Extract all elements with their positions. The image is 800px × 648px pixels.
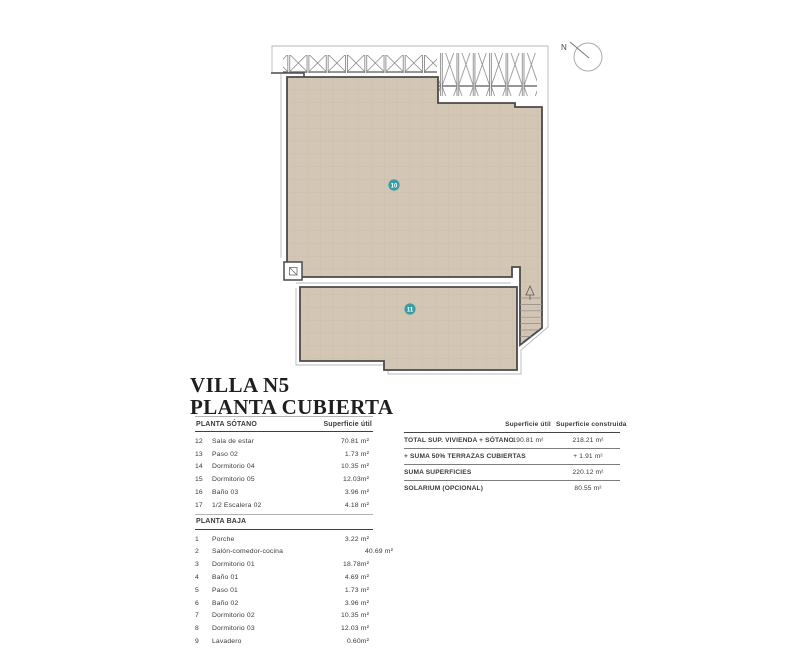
table-row: 12 Sala de estar 70.81 m²: [195, 435, 373, 448]
table-row: 3 Dormitorio 01 18.78m²: [195, 558, 373, 571]
room-area: 4.18 m²: [345, 502, 373, 509]
room-area: 0.60m²: [347, 638, 373, 645]
room-number: 1: [195, 536, 212, 543]
page-title: VILLA N5 PLANTA CUBIERTA: [190, 374, 393, 418]
summary-row: + SUMA 50% TERRAZAS CUBIERTAS + 1.91 m²: [404, 449, 620, 465]
lower-roof-area: [300, 287, 517, 370]
room-area: 3.96 m²: [345, 600, 373, 607]
roof-plan-drawing: 10 11 N: [0, 0, 800, 640]
title-line-2: PLANTA CUBIERTA: [190, 396, 393, 418]
sotano-header: PLANTA SÓTANO Superficie útil: [195, 416, 373, 432]
chimney-symbol: [284, 262, 302, 280]
summary-label: SOLARIUM (OPCIONAL): [404, 485, 500, 492]
summary-col1-header: Superficie útil: [500, 421, 556, 428]
baja-rows: 1 Porche 3.22 m² 2 Salón-comedor-cocina …: [195, 530, 373, 648]
room-area: 12.03 m²: [341, 625, 373, 632]
room-number: 16: [195, 489, 212, 496]
pergola-beams-right: [439, 53, 537, 96]
table-row: 17 1/2 Escalera 02 4.18 m²: [195, 499, 373, 512]
table-row: 7 Dormitorio 02 10.35 m²: [195, 610, 373, 623]
table-row: 9 Lavadero 0.60m²: [195, 635, 373, 648]
room-name: Baño 03: [212, 489, 345, 496]
room-number: 6: [195, 600, 212, 607]
room-area-tables: PLANTA SÓTANO Superficie útil 12 Sala de…: [195, 416, 373, 648]
room-name: Salón-comedor-cocina: [212, 548, 365, 555]
summary-label: SUMA SUPERFICIES: [404, 469, 500, 476]
room-name: Dormitorio 04: [212, 463, 341, 470]
summary-row: TOTAL SUP. VIVIENDA + SÓTANO 190.81 m² 2…: [404, 433, 620, 449]
summary-util: 190.81 m²: [500, 437, 556, 444]
table-row: 8 Dormitorio 03 12.03 m²: [195, 622, 373, 635]
sotano-rows: 12 Sala de estar 70.81 m² 13 Paso 02 1.7…: [195, 432, 373, 512]
room-number: 5: [195, 587, 212, 594]
summary-label: TOTAL SUP. VIVIENDA + SÓTANO: [404, 437, 500, 444]
surface-summary-table: Superficie útil Superficie construida TO…: [404, 416, 620, 496]
room-number: 9: [195, 638, 212, 645]
room-area: 12.03m²: [343, 476, 373, 483]
room-name: 1/2 Escalera 02: [212, 502, 345, 509]
summary-constr: 220.12 m²: [556, 469, 620, 476]
room-name: Lavadero: [212, 638, 347, 645]
pergola-beams-left: [283, 55, 437, 73]
room-name: Dormitorio 01: [212, 561, 343, 568]
table-row: 6 Baño 02 3.96 m²: [195, 597, 373, 610]
room-number: 2: [195, 548, 212, 555]
table-row: 5 Paso 01 1.73 m²: [195, 584, 373, 597]
room-name: Paso 01: [212, 587, 345, 594]
room-marker-10: 10: [388, 179, 399, 190]
room-area: 10.35 m²: [341, 463, 373, 470]
room-area: 10.35 m²: [341, 612, 373, 619]
sotano-col-header: Superficie útil: [323, 421, 372, 428]
room-name: Dormitorio 05: [212, 476, 343, 483]
room-marker-11-label: 11: [407, 307, 414, 313]
summary-row: SUMA SUPERFICIES 220.12 m²: [404, 465, 620, 481]
room-number: 14: [195, 463, 212, 470]
room-number: 4: [195, 574, 212, 581]
title-line-1: VILLA N5: [190, 374, 393, 396]
room-number: 8: [195, 625, 212, 632]
room-number: 7: [195, 612, 212, 619]
summary-constr: 218.21 m²: [556, 437, 620, 444]
room-name: Baño 01: [212, 574, 345, 581]
table-row: 16 Baño 03 3.96 m²: [195, 486, 373, 499]
table-row: 4 Baño 01 4.69 m²: [195, 571, 373, 584]
room-area: 1.73 m²: [345, 451, 373, 458]
table-row: 14 Dormitorio 04 10.35 m²: [195, 461, 373, 474]
room-area: 40.69 m²: [365, 548, 393, 555]
summary-col2-header: Superficie construida: [556, 421, 620, 428]
summary-constr: + 1.91 m²: [556, 453, 620, 460]
table-row: 1 Porche 3.22 m²: [195, 533, 373, 546]
room-number: 17: [195, 502, 212, 509]
summary-label: + SUMA 50% TERRAZAS CUBIERTAS: [404, 453, 500, 460]
room-area: 3.22 m²: [345, 536, 373, 543]
room-name: Paso 02: [212, 451, 345, 458]
room-area: 4.69 m²: [345, 574, 373, 581]
table-row: 15 Dormitorio 05 12.03m²: [195, 473, 373, 486]
room-area: 70.81 m²: [341, 438, 373, 445]
room-marker-11: 11: [404, 303, 415, 314]
summary-constr: 80.55 m²: [556, 485, 620, 492]
room-name: Porche: [212, 536, 345, 543]
room-name: Baño 02: [212, 600, 345, 607]
room-number: 15: [195, 476, 212, 483]
room-number: 3: [195, 561, 212, 568]
baja-header: PLANTA BAJA: [195, 514, 373, 530]
room-name: Dormitorio 03: [212, 625, 341, 632]
room-number: 13: [195, 451, 212, 458]
plan-sheet: { "page": { "title_line1": "VILLA N5", "…: [0, 0, 800, 640]
table-row: 13 Paso 02 1.73 m²: [195, 448, 373, 461]
room-area: 18.78m²: [343, 561, 373, 568]
room-name: Sala de estar: [212, 438, 341, 445]
sotano-title: PLANTA SÓTANO: [196, 421, 257, 428]
room-marker-10-label: 10: [391, 183, 398, 189]
table-row: 2 Salón-comedor-cocina 40.69 m²: [195, 546, 373, 559]
room-area: 1.73 m²: [345, 587, 373, 594]
room-area: 3.96 m²: [345, 489, 373, 496]
room-name: Dormitorio 02: [212, 612, 341, 619]
north-arrow-icon: N: [561, 42, 602, 71]
summary-header: Superficie útil Superficie construida: [404, 416, 620, 433]
north-label: N: [561, 43, 567, 52]
baja-title: PLANTA BAJA: [196, 518, 246, 525]
room-number: 12: [195, 438, 212, 445]
summary-row: SOLARIUM (OPCIONAL) 80.55 m²: [404, 481, 620, 496]
